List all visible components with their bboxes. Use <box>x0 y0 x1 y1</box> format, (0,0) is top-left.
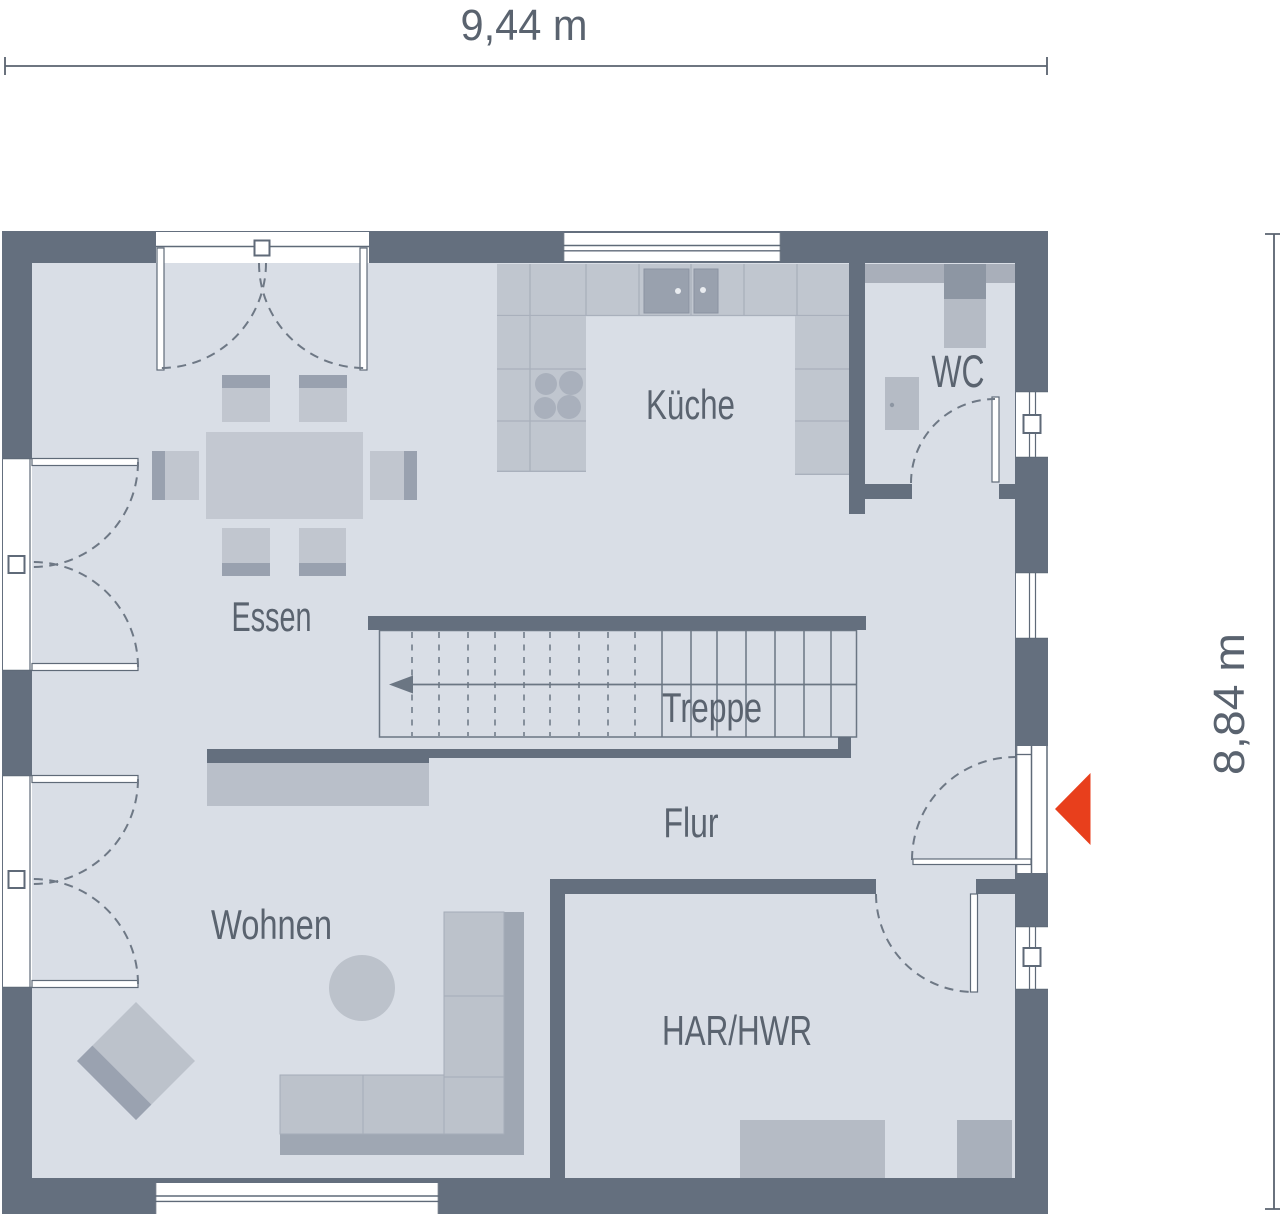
svg-text:Flur: Flur <box>664 799 719 846</box>
svg-text:Wohnen: Wohnen <box>211 901 332 948</box>
svg-text:8,84 m: 8,84 m <box>1205 633 1254 775</box>
svg-text:HAR/HWR: HAR/HWR <box>662 1007 812 1054</box>
svg-text:Treppe: Treppe <box>662 684 762 731</box>
svg-text:Essen: Essen <box>232 593 312 640</box>
svg-text:Küche: Küche <box>646 381 735 428</box>
svg-text:WC: WC <box>932 346 985 397</box>
svg-text:9,44 m: 9,44 m <box>461 1 588 50</box>
